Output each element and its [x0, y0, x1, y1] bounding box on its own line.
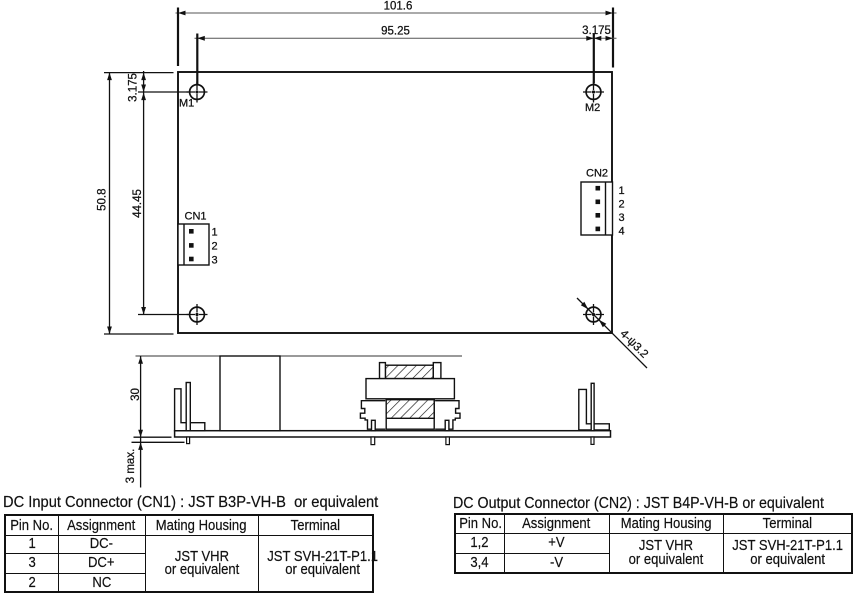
svg-text:3: 3 [212, 255, 218, 267]
svg-text:1: 1 [212, 227, 218, 239]
svg-text:M2: M2 [585, 102, 600, 114]
svg-text:3.175: 3.175 [128, 73, 140, 102]
svg-text:3.175: 3.175 [582, 25, 611, 37]
svg-text:4-ψ3.2: 4-ψ3.2 [617, 328, 650, 361]
svg-text:30: 30 [130, 388, 142, 401]
svg-text:2: 2 [212, 241, 218, 253]
svg-text:3: 3 [619, 212, 625, 224]
svg-text:1: 1 [619, 185, 625, 197]
svg-text:95.25: 95.25 [381, 25, 410, 37]
svg-text:4: 4 [619, 226, 625, 238]
svg-text:3 max.: 3 max. [125, 449, 137, 484]
svg-text:101.6: 101.6 [384, 1, 413, 13]
svg-text:2: 2 [619, 199, 625, 211]
svg-text:44.45: 44.45 [132, 189, 144, 218]
svg-text:CN1: CN1 [185, 211, 207, 223]
svg-text:M1: M1 [179, 98, 194, 110]
svg-text:CN2: CN2 [586, 168, 608, 180]
svg-text:50.8: 50.8 [97, 189, 109, 211]
